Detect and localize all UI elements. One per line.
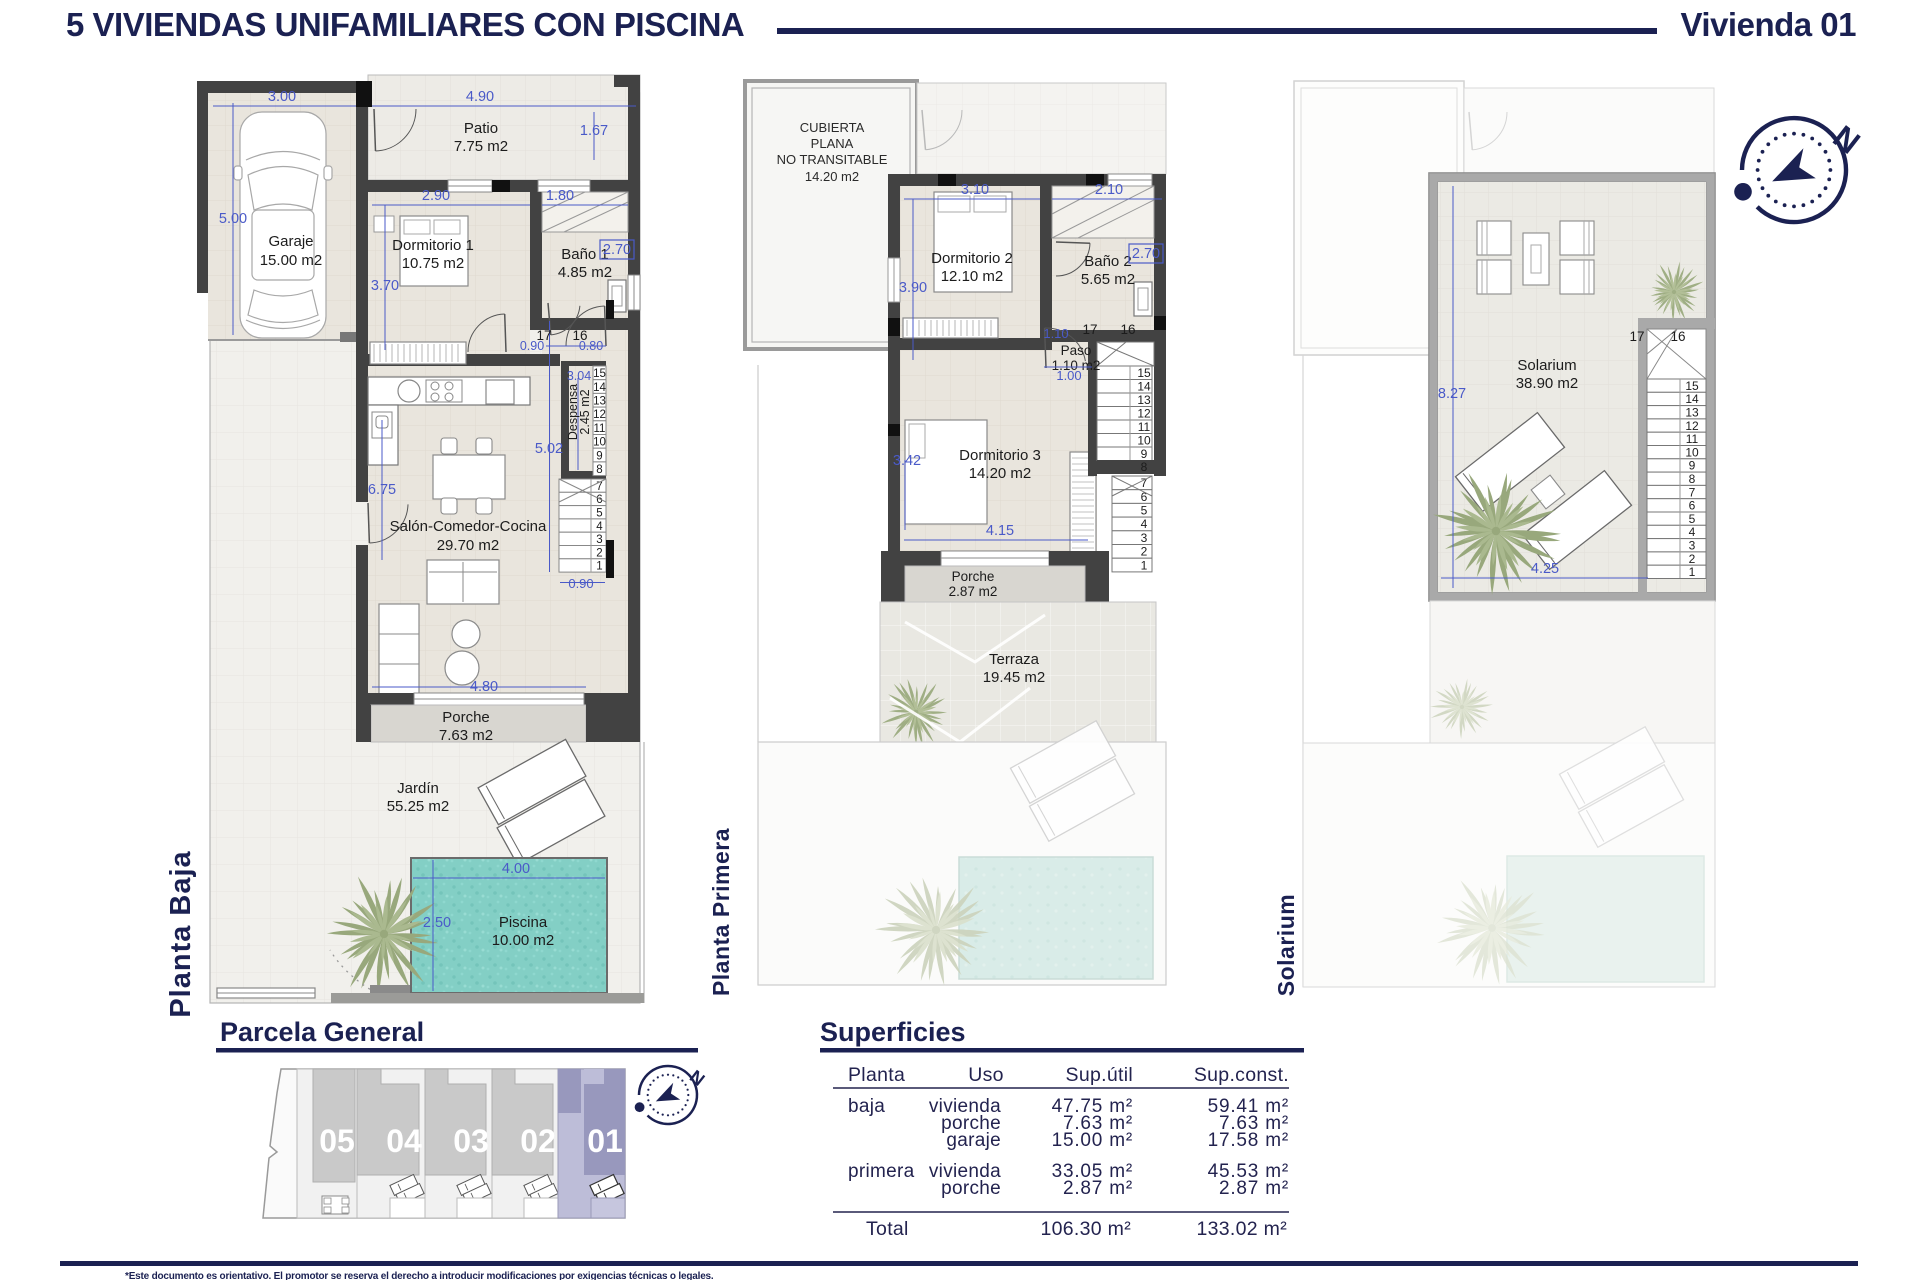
svg-text:Baño 1: Baño 1	[561, 246, 609, 263]
svg-text:Uso: Uso	[968, 1064, 1004, 1086]
svg-text:11: 11	[1686, 432, 1699, 446]
svg-text:3.00: 3.00	[268, 89, 296, 105]
svg-text:0.90: 0.90	[568, 576, 593, 591]
svg-text:1: 1	[1689, 565, 1696, 579]
svg-text:1.10: 1.10	[1043, 326, 1068, 341]
svg-text:12: 12	[1685, 419, 1699, 433]
svg-text:16: 16	[1670, 329, 1685, 344]
svg-text:3.70: 3.70	[371, 278, 399, 294]
svg-text:4: 4	[1689, 525, 1696, 539]
svg-text:Total: Total	[866, 1218, 909, 1240]
svg-text:5.65 m2: 5.65 m2	[1081, 271, 1135, 288]
svg-text:Solarium: Solarium	[1273, 894, 1299, 996]
svg-text:Parcela General: Parcela General	[220, 1017, 424, 1047]
svg-text:2.87 m2: 2.87 m2	[949, 584, 998, 599]
svg-text:5.00: 5.00	[219, 211, 247, 227]
svg-text:12: 12	[1137, 406, 1151, 420]
svg-text:15: 15	[593, 368, 606, 380]
svg-text:Dormitorio 2: Dormitorio 2	[931, 250, 1013, 267]
svg-text:6: 6	[1689, 499, 1696, 513]
svg-text:4.90: 4.90	[466, 89, 494, 105]
svg-text:16: 16	[1120, 322, 1135, 337]
svg-text:baja: baja	[848, 1096, 885, 1117]
svg-text:NO TRANSITABLE: NO TRANSITABLE	[777, 152, 888, 167]
svg-text:3.04: 3.04	[567, 369, 591, 383]
svg-text:Superficies: Superficies	[820, 1017, 966, 1047]
svg-text:55.25 m2: 55.25 m2	[387, 798, 450, 815]
svg-text:3.42: 3.42	[893, 453, 921, 469]
svg-text:2: 2	[1141, 545, 1148, 559]
svg-text:11: 11	[594, 423, 606, 435]
svg-text:2.87 m²: 2.87 m²	[1219, 1178, 1289, 1199]
svg-text:Vivienda 01: Vivienda 01	[1680, 6, 1856, 43]
svg-text:1.80: 1.80	[546, 188, 574, 204]
svg-text:02: 02	[520, 1123, 556, 1159]
svg-text:04: 04	[386, 1123, 422, 1159]
svg-text:13: 13	[593, 395, 606, 407]
svg-text:Planta: Planta	[848, 1064, 905, 1086]
svg-text:Jardín: Jardín	[397, 780, 439, 797]
svg-text:2.45 m2: 2.45 m2	[578, 389, 592, 434]
svg-text:8: 8	[596, 464, 602, 476]
svg-text:5: 5	[1141, 503, 1148, 517]
svg-text:106.30 m²: 106.30 m²	[1041, 1218, 1132, 1240]
svg-text:0.80: 0.80	[579, 339, 603, 353]
svg-text:10: 10	[1685, 445, 1699, 459]
svg-text:9: 9	[596, 450, 602, 462]
svg-text:2.50: 2.50	[423, 915, 451, 931]
svg-text:1.00: 1.00	[1056, 368, 1081, 383]
svg-text:13: 13	[1137, 393, 1151, 407]
svg-text:Porche: Porche	[442, 709, 490, 726]
svg-text:3.90: 3.90	[899, 280, 927, 296]
svg-text:5 VIVIENDAS UNIFAMILIARES CON: 5 VIVIENDAS UNIFAMILIARES CON PISCINA	[66, 6, 744, 43]
svg-text:01: 01	[587, 1123, 623, 1159]
svg-text:14: 14	[1137, 379, 1151, 393]
svg-text:38.90 m2: 38.90 m2	[1516, 375, 1579, 392]
svg-text:03: 03	[453, 1123, 489, 1159]
svg-text:9: 9	[1689, 459, 1696, 473]
svg-text:1: 1	[1141, 558, 1148, 572]
svg-text:Dormitorio 3: Dormitorio 3	[959, 447, 1041, 464]
svg-text:2: 2	[596, 547, 602, 559]
svg-text:Terraza: Terraza	[989, 651, 1040, 668]
svg-text:PLANA: PLANA	[811, 136, 854, 151]
svg-text:1: 1	[596, 561, 602, 573]
svg-text:8: 8	[1689, 472, 1696, 486]
svg-text:13: 13	[1685, 405, 1699, 419]
svg-text:17: 17	[1082, 322, 1097, 337]
svg-text:9: 9	[1141, 447, 1148, 461]
svg-text:5: 5	[596, 507, 602, 519]
svg-text:Paso: Paso	[1061, 343, 1092, 358]
svg-text:Dormitorio 1: Dormitorio 1	[392, 237, 474, 254]
svg-text:1.67: 1.67	[580, 123, 608, 139]
svg-text:11: 11	[1138, 420, 1151, 434]
svg-text:15.00 m²: 15.00 m²	[1052, 1130, 1133, 1151]
svg-text:12: 12	[593, 409, 606, 421]
svg-text:2.10: 2.10	[1095, 182, 1123, 198]
svg-text:6.75: 6.75	[368, 482, 396, 498]
svg-text:garaje: garaje	[946, 1130, 1001, 1151]
svg-text:12.10 m2: 12.10 m2	[941, 268, 1004, 285]
svg-text:4: 4	[1141, 517, 1148, 531]
svg-text:7.63 m2: 7.63 m2	[439, 727, 493, 744]
svg-text:4.15: 4.15	[986, 523, 1014, 539]
svg-text:Garaje: Garaje	[268, 233, 313, 250]
svg-text:29.70 m2: 29.70 m2	[437, 537, 500, 554]
svg-text:4.85 m2: 4.85 m2	[558, 264, 612, 281]
svg-text:5: 5	[1689, 512, 1696, 526]
svg-text:Baño 2: Baño 2	[1084, 253, 1132, 270]
svg-text:10: 10	[593, 437, 606, 449]
svg-text:17.58 m²: 17.58 m²	[1208, 1130, 1289, 1151]
svg-text:Salón-Comedor-Cocina: Salón-Comedor-Cocina	[390, 518, 547, 535]
svg-text:primera: primera	[848, 1161, 915, 1182]
svg-text:10.75 m2: 10.75 m2	[402, 255, 465, 272]
svg-text:05: 05	[319, 1123, 355, 1159]
svg-text:3: 3	[596, 534, 602, 546]
svg-text:Piscina: Piscina	[499, 914, 548, 931]
svg-text:4: 4	[596, 521, 603, 533]
svg-text:14.20 m2: 14.20 m2	[969, 465, 1032, 482]
svg-text:7: 7	[1689, 485, 1696, 499]
svg-text:10.00 m2: 10.00 m2	[492, 932, 555, 949]
svg-text:CUBIERTA: CUBIERTA	[800, 120, 865, 135]
svg-text:3: 3	[1689, 538, 1696, 552]
svg-text:8: 8	[1141, 460, 1148, 474]
svg-text:3: 3	[1141, 531, 1148, 545]
svg-text:Sup.útil: Sup.útil	[1066, 1064, 1133, 1086]
svg-text:Solarium: Solarium	[1517, 357, 1576, 374]
svg-text:2.87 m²: 2.87 m²	[1063, 1178, 1133, 1199]
svg-text:2.70: 2.70	[603, 242, 631, 258]
svg-text:14: 14	[593, 382, 606, 394]
svg-text:133.02 m²: 133.02 m²	[1197, 1218, 1288, 1240]
svg-text:Planta Primera: Planta Primera	[708, 828, 734, 996]
svg-text:17: 17	[1629, 329, 1644, 344]
svg-text:Porche: Porche	[952, 569, 995, 584]
svg-text:19.45 m2: 19.45 m2	[983, 669, 1046, 686]
svg-text:2.90: 2.90	[422, 188, 450, 204]
svg-text:0.90: 0.90	[520, 339, 544, 353]
svg-text:7.75 m2: 7.75 m2	[454, 138, 508, 155]
svg-text:*Este documento es orientativo: *Este documento es orientativo. El promo…	[125, 1271, 714, 1280]
svg-text:Sup.const.: Sup.const.	[1194, 1064, 1289, 1086]
svg-text:2: 2	[1689, 552, 1696, 566]
svg-text:14.20 m2: 14.20 m2	[805, 169, 859, 184]
svg-text:3.10: 3.10	[961, 182, 989, 198]
svg-text:14: 14	[1685, 392, 1699, 406]
svg-text:4.25: 4.25	[1531, 561, 1559, 577]
svg-text:15: 15	[1685, 379, 1699, 393]
svg-text:porche: porche	[941, 1178, 1001, 1199]
svg-text:10: 10	[1137, 433, 1151, 447]
svg-text:15: 15	[1137, 366, 1151, 380]
svg-text:8.27: 8.27	[1438, 386, 1466, 402]
svg-text:2.70: 2.70	[1132, 246, 1160, 262]
svg-text:Patio: Patio	[464, 120, 498, 137]
svg-text:4.00: 4.00	[502, 861, 530, 877]
svg-text:Planta Baja: Planta Baja	[165, 850, 197, 1017]
svg-text:15.00 m2: 15.00 m2	[260, 252, 323, 269]
